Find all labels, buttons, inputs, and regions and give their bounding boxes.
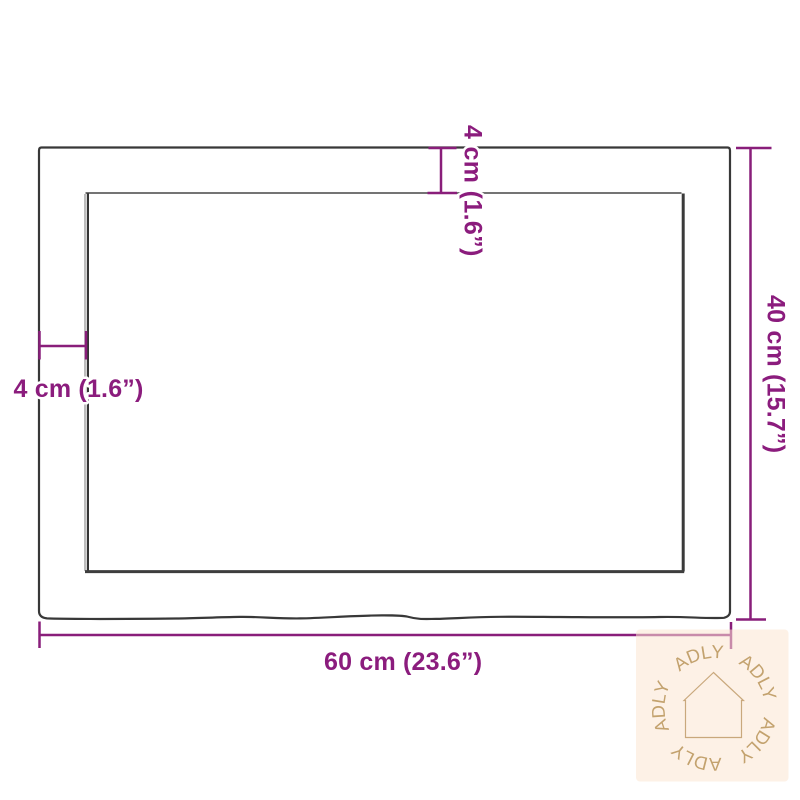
svg-text:4 cm (1.6”): 4 cm (1.6”) xyxy=(459,125,487,257)
svg-text:40 cm (15.7”): 40 cm (15.7”) xyxy=(762,295,790,453)
svg-text:4 cm (1.6”): 4 cm (1.6”) xyxy=(14,375,144,403)
svg-text:60 cm (23.6”): 60 cm (23.6”) xyxy=(324,648,482,676)
